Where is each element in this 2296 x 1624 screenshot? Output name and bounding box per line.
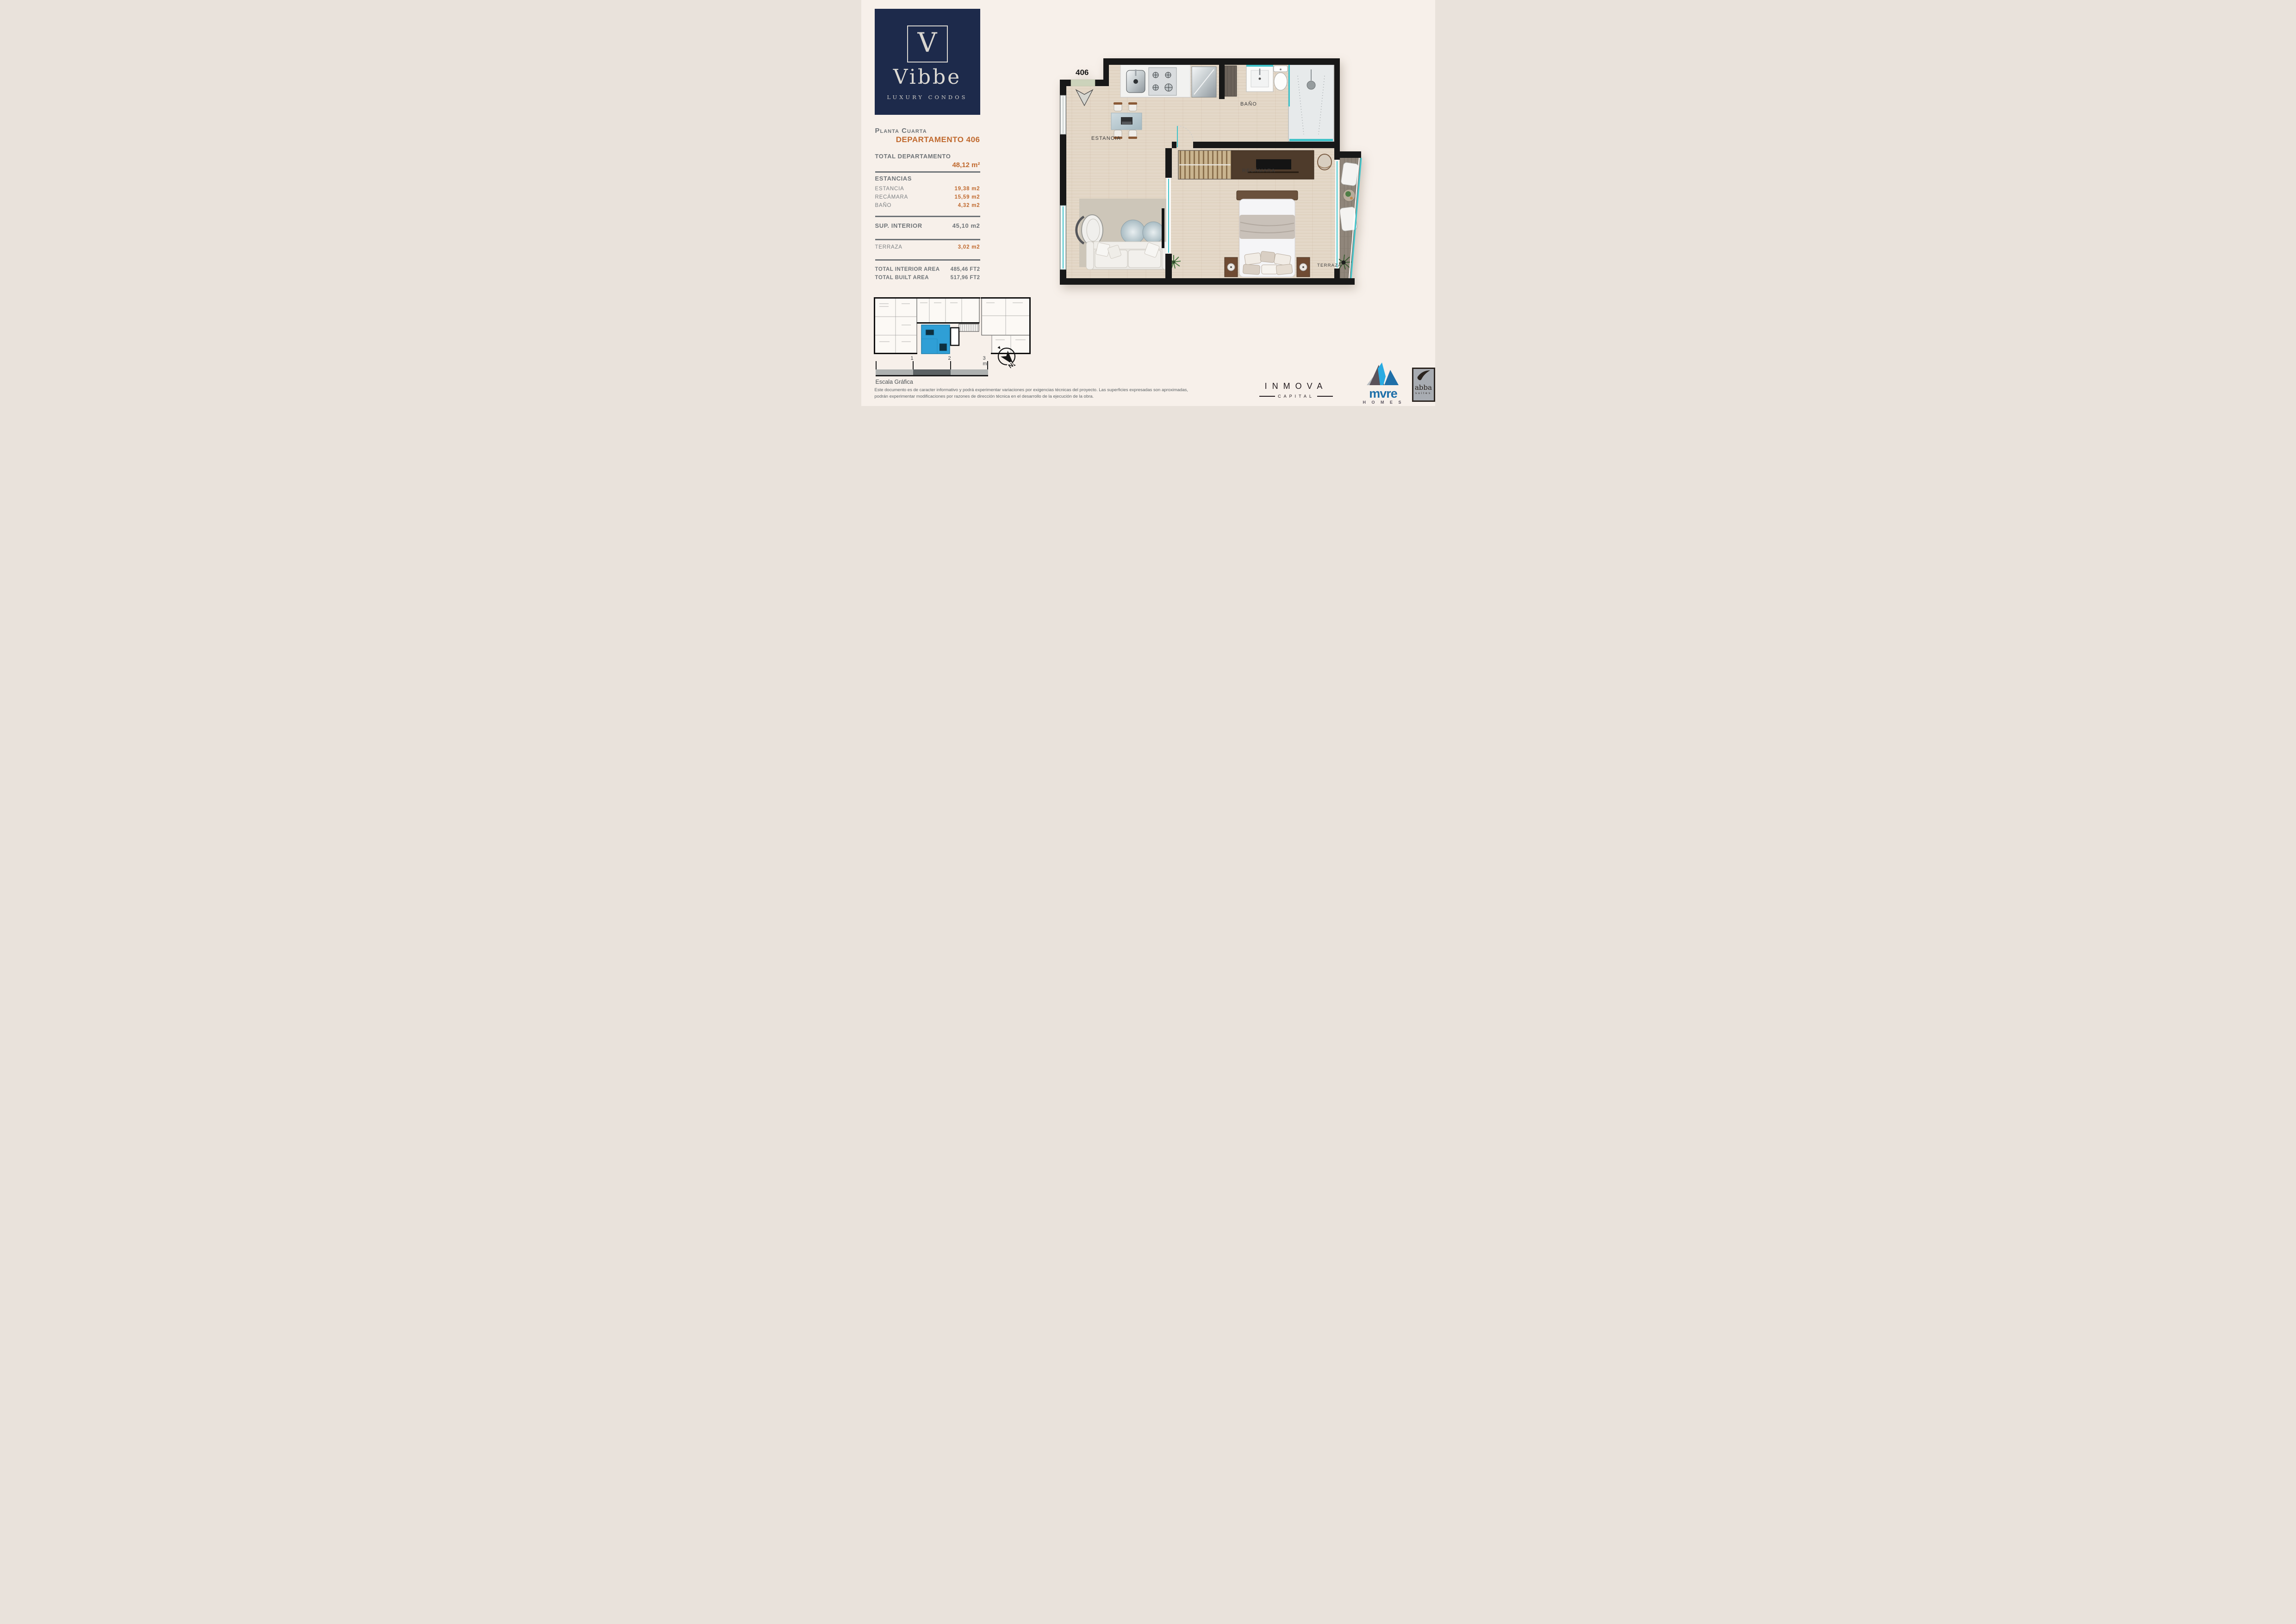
- scale-caption: Escala Gráfica: [876, 379, 913, 385]
- north-label: N: [1007, 362, 1014, 370]
- brand-monogram-frame: V: [907, 25, 948, 62]
- total-interior-value: 485,46 FT2: [951, 267, 980, 272]
- room-value: 19,38 m2: [955, 186, 980, 192]
- graphic-scale: 1 2 3 m. Escala Gráfica: [876, 356, 988, 385]
- scale-segments: [876, 369, 988, 376]
- scale-tick: [876, 361, 877, 369]
- floor-title: Planta Cuarta: [875, 127, 980, 135]
- terraza-label: TERRAZA: [875, 244, 902, 250]
- scale-tick: [913, 361, 914, 369]
- total-departamento-value: 48,12 m²: [875, 161, 980, 169]
- inmova-name: INMOVA: [1238, 381, 1354, 391]
- lounge-chair: [1340, 162, 1358, 186]
- room-label: BAÑO: [875, 203, 892, 208]
- total-built-value: 517,96 FT2: [951, 275, 980, 281]
- divider: [875, 216, 980, 217]
- kitchen-closet: [1225, 66, 1237, 96]
- mvre-sub: H O M E S: [1362, 400, 1405, 405]
- room-label: ESTANCIA: [875, 186, 904, 192]
- mvre-name: mvre: [1362, 388, 1405, 399]
- sup-interior-label: SUP. INTERIOR: [875, 222, 922, 229]
- divider: [875, 239, 980, 240]
- nightstand: [1225, 257, 1238, 277]
- disclaimer-line2: podrán experimentar modificaciones por r…: [875, 394, 1240, 400]
- unit-number: 406: [1076, 68, 1089, 77]
- label-bano: BAÑO: [1240, 101, 1257, 107]
- abba-name: abba: [1413, 384, 1434, 391]
- scale-tick-label: 1: [911, 356, 914, 361]
- abba-sub: suites: [1413, 392, 1434, 395]
- sofa-icon: [1086, 242, 1170, 269]
- label-terraza: TERRAZA: [1317, 263, 1342, 268]
- divider: [875, 171, 980, 173]
- total-interior-label: TOTAL INTERIOR AREA: [875, 267, 940, 272]
- sup-interior-row: SUP. INTERIOR 45,10 m2: [875, 222, 980, 229]
- scale-tick: [987, 361, 988, 369]
- bed-icon: [1237, 191, 1298, 277]
- scale-tick: [950, 361, 951, 369]
- sup-interior-value: 45,10 m2: [952, 222, 980, 229]
- bedroom-chair: [1318, 154, 1332, 170]
- inmova-sub-label: CAPITAL: [1278, 394, 1314, 399]
- keyplan-center-block: [917, 298, 979, 323]
- label-estancia: ESTANCIA: [1091, 136, 1121, 141]
- room-label: RECÁMARA: [875, 194, 908, 200]
- disclaimer-text: Este documento es de caracter informativ…: [875, 387, 1240, 400]
- room-value: 15,59 m2: [955, 194, 980, 200]
- brand-tagline: LUXURY CONDOS: [875, 94, 980, 100]
- abba-suites-logo: abba suites: [1412, 368, 1435, 402]
- tv-panel-icon: [1162, 208, 1164, 248]
- stove-icon: [1149, 68, 1176, 95]
- mvre-mountains-icon: [1367, 362, 1400, 386]
- coffee-table: [1143, 222, 1164, 243]
- coffee-table: [1121, 220, 1145, 244]
- inmova-sub: CAPITAL: [1238, 394, 1354, 399]
- mvre-homes-logo: mvre H O M E S: [1362, 362, 1405, 405]
- brand-monogram-letter: V: [918, 29, 937, 56]
- room-row-recamara: RECÁMARA 15,59 m2: [875, 194, 980, 200]
- keyplan-stairs: [959, 324, 979, 331]
- terraza-value: 3,02 m2: [958, 244, 980, 250]
- rule-line: [1259, 396, 1275, 397]
- nightstand: [1297, 257, 1310, 277]
- abba-leaf-icon: [1416, 369, 1431, 381]
- disclaimer-line1: Este documento es de caracter informativ…: [875, 387, 1240, 394]
- room-row-estancia: ESTANCIA 19,38 m2: [875, 186, 980, 192]
- room-value: 4,32 m2: [958, 203, 980, 208]
- scale-tick-label: 2: [948, 356, 951, 361]
- total-built-label: TOTAL BUILT AREA: [875, 275, 929, 281]
- area-summary-panel: Planta Cuarta DEPARTAMENTO 406 TOTAL DEP…: [875, 125, 980, 287]
- brand-logo: V Vibbe LUXURY CONDOS: [875, 9, 980, 115]
- room-row-bano: BAÑO 4,32 m2: [875, 203, 980, 208]
- toilet-icon: [1274, 66, 1288, 90]
- unit-title: DEPARTAMENTO 406: [875, 135, 980, 144]
- terraza-row: TERRAZA 3,02 m2: [875, 244, 980, 250]
- rule-line: [1317, 396, 1333, 397]
- divider: [875, 259, 980, 261]
- plant-icon: [1345, 191, 1351, 197]
- estancias-header: ESTANCIAS: [875, 175, 980, 182]
- entry-step: [1071, 80, 1095, 86]
- media-console: [1232, 150, 1314, 179]
- inmova-capital-logo: INMOVA CAPITAL: [1238, 381, 1354, 399]
- total-interior-row: TOTAL INTERIOR AREA 485,46 FT2: [875, 267, 980, 272]
- label-recamara: RECÁMARA: [1242, 168, 1276, 174]
- keyplan-right-wing: [982, 298, 1030, 335]
- vanity-sink-icon: [1246, 65, 1273, 92]
- unit-406-floorplan: ESTANCIA BAÑO RECÁMARA TERRAZA 406: [1057, 56, 1363, 287]
- total-departamento-label: TOTAL DEPARTAMENTO: [875, 153, 980, 160]
- laptop-icon: [1121, 117, 1132, 125]
- total-built-row: TOTAL BUILT AREA 517,96 FT2: [875, 275, 980, 281]
- north-arrow-icon: N: [992, 344, 1022, 374]
- floorplan-sheet: V Vibbe LUXURY CONDOS Planta Cuarta DEPA…: [861, 0, 1435, 406]
- brand-name: Vibbe: [875, 65, 980, 89]
- keyplan-elevator: [951, 328, 959, 345]
